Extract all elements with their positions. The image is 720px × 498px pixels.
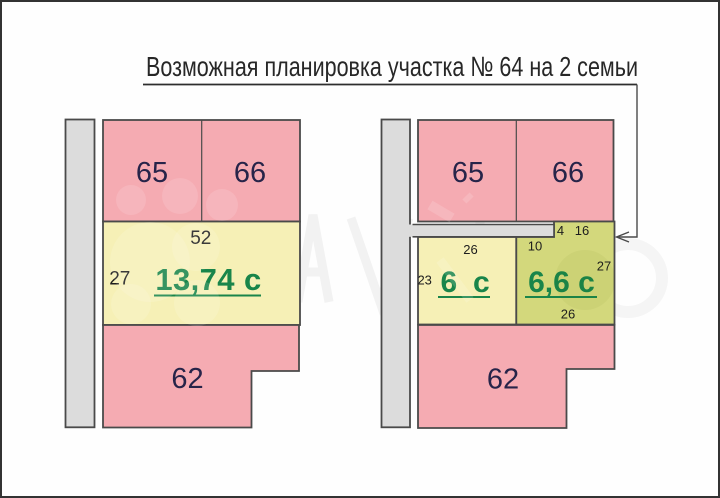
- svg-text:66: 66: [234, 157, 266, 189]
- svg-text:26: 26: [561, 307, 575, 322]
- svg-text:23: 23: [417, 273, 431, 288]
- svg-text:16: 16: [575, 223, 589, 238]
- svg-text:62: 62: [171, 363, 203, 395]
- svg-text:с: с: [473, 266, 490, 299]
- svg-text:62: 62: [487, 364, 519, 396]
- svg-text:26: 26: [463, 242, 477, 257]
- svg-text:66: 66: [552, 157, 584, 189]
- svg-text:65: 65: [136, 157, 168, 189]
- svg-text:10: 10: [528, 239, 542, 254]
- svg-text:4: 4: [557, 223, 564, 238]
- svg-text:65: 65: [452, 157, 484, 189]
- svg-text:Возможная планировка участка №: Возможная планировка участка № 64 на 2 с…: [146, 51, 638, 82]
